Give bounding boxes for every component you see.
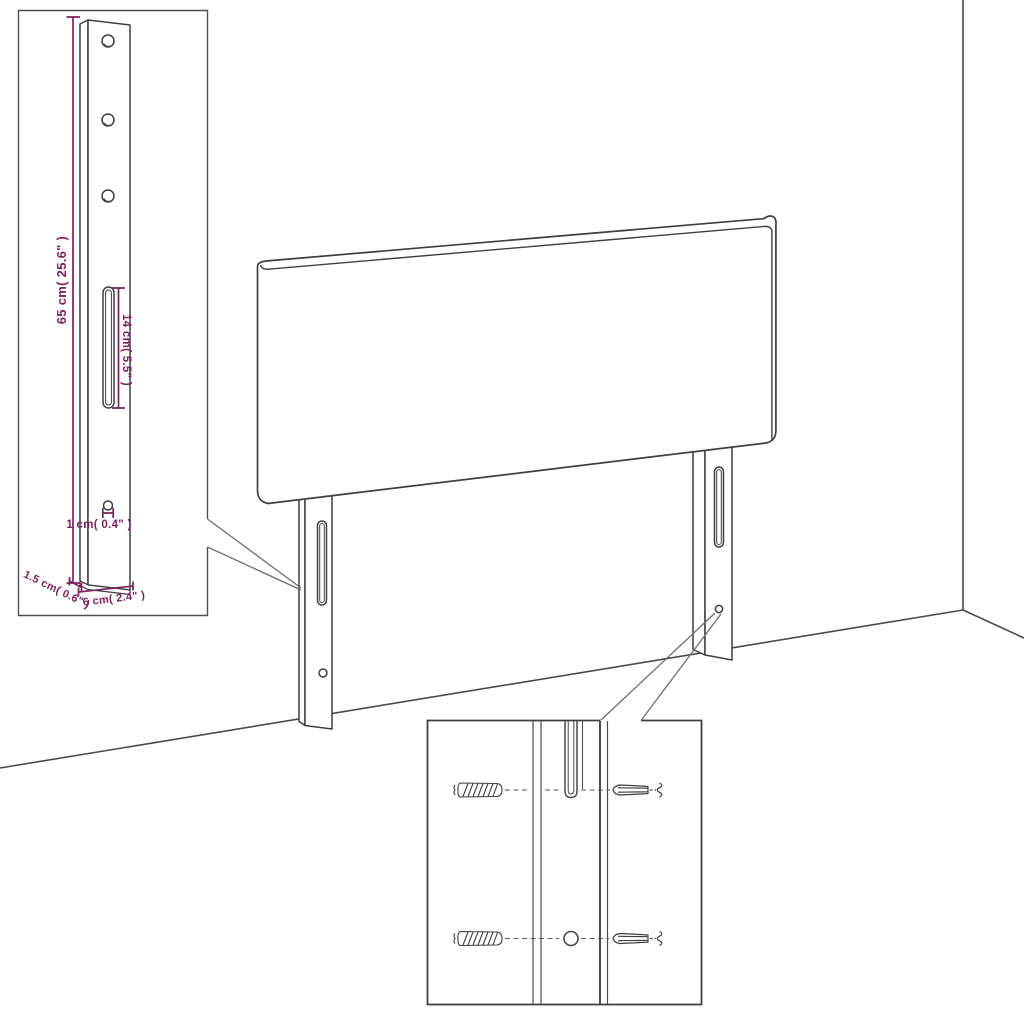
left-leg-hole (319, 669, 327, 677)
callout-wedge-left (208, 519, 302, 590)
headboard-left-leg (299, 491, 332, 729)
hole-diameter-label: 1 cm( 0.4" ) (66, 519, 131, 531)
height-label: 65 cm( 25.6" ) (54, 236, 69, 324)
detail-leg-hole-2 (102, 114, 114, 126)
right-leg-side-face (693, 437, 705, 655)
left-leg-side-face (299, 493, 305, 726)
detail-leg (80, 20, 130, 595)
detail-leg-slot-inner (106, 290, 112, 405)
slot-length-label: 14 cm( 5.5" ) (120, 314, 132, 386)
product-diagram: 65 cm( 25.6" ) 14 cm( 5.5" ) 1 cm( 0.4" … (0, 0, 1024, 1024)
detail-leg-small-hole (104, 501, 113, 510)
detail-leg-side-face (80, 20, 88, 585)
right-leg-slot-inner (717, 470, 722, 545)
floor-line-right (963, 610, 1024, 638)
callout-right-line-2 (641, 614, 721, 721)
detail-leg-hole-1 (102, 35, 114, 47)
left-leg-slot-inner (320, 524, 325, 603)
leg-detail-inset: 65 cm( 25.6" ) 14 cm( 5.5" ) 1 cm( 0.4" … (19, 11, 208, 616)
detail-leg-hole-3 (102, 190, 114, 202)
hardware-detail-inset (428, 721, 702, 1005)
diagram-canvas: 65 cm( 25.6" ) 14 cm( 5.5" ) 1 cm( 0.4" … (0, 0, 1024, 1024)
right-leg-hole (715, 605, 722, 612)
